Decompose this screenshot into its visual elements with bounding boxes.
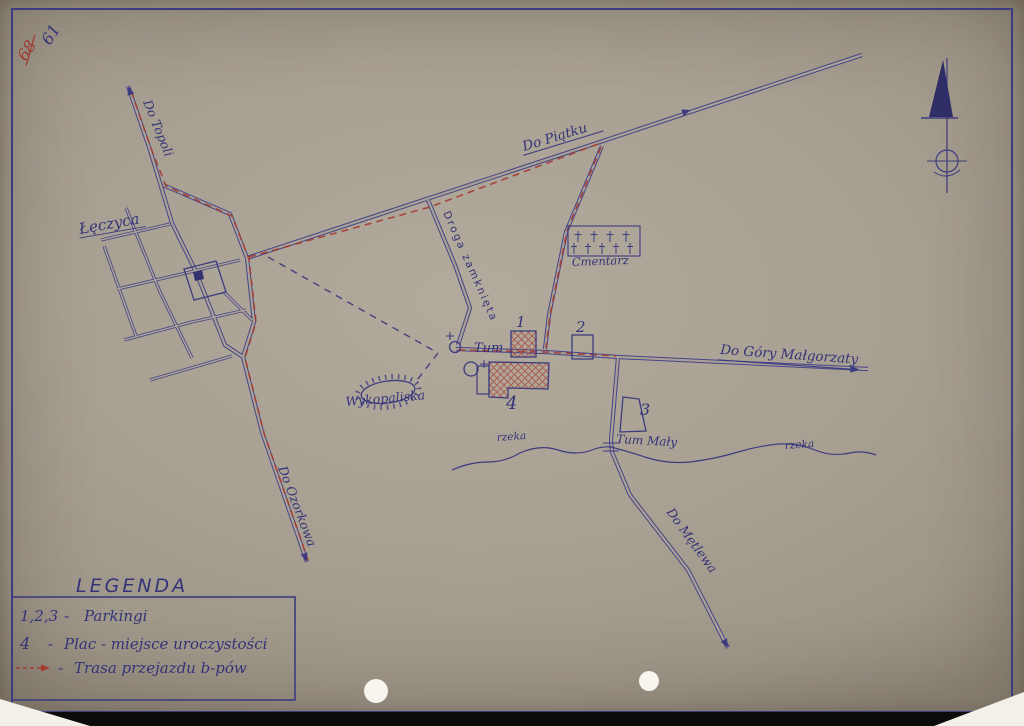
legend-entry-2-dash: - [48,635,53,653]
scan-bottom-strip [0,712,1024,726]
tum-area: 1 2 3 4 Tum Tum Mały [446,313,678,449]
road-label-metlewa: Do Mętlewa [663,504,721,575]
road-label-gm-group: Do Góry Małgorzaty [717,342,861,373]
cross-icon-2 [480,360,488,368]
legend-route-arrow-icon [41,665,50,672]
legend-entry-1-dash: - [64,607,69,625]
dashed-lines [268,257,438,384]
hand-drawn-map: 68 61 [0,0,1024,726]
marker-1: 1 [516,313,526,331]
legend: LEGENDA 1,2,3 - Parkingi 4 - Plac - miej… [12,575,295,700]
marker-2: 2 [575,318,586,336]
tum-maly-label: Tum Mały [616,432,678,449]
legend-entry-3-label: Trasa przejazdu b-pów [74,659,247,677]
dashed-line-to-excavation [414,353,438,384]
cemetery: Cmentarz [568,226,640,269]
cemetery-label: Cmentarz [572,253,630,269]
town-hall-block [193,270,204,281]
road-label-piatku-group: Do Piątku [519,116,604,156]
ceremony-square-annex [477,366,489,394]
north-arrow [921,58,967,193]
punch-hole-left [364,679,388,703]
legend-entry-1-label: Parkingi [83,607,148,625]
parking-1-square [511,331,536,357]
cemetery-crosses-icon [571,231,633,254]
river-label-west: rzeka [496,430,526,444]
cemetery-outline [568,226,640,256]
crossed-number-text: 68 [13,37,40,64]
river-label-east: rzeka [784,438,814,452]
road-label-topoli: Do Topoli [140,97,177,159]
north-arrowhead [929,60,953,117]
legend-entry-1-symbol: 1,2,3 [20,607,58,625]
legend-entry-3-dash: - [58,659,63,677]
legend-entry-2-label: Plac - miejsce uroczystości [63,635,268,653]
punch-hole-right [639,671,659,691]
marker-3: 3 [640,400,650,419]
archival-number: 61 [37,21,64,48]
tum-label: Tum [474,341,503,356]
dashed-line-leczyca-tum [268,257,438,353]
marker-4: 4 [505,393,517,414]
cross-icon [446,332,454,340]
legend-title: LEGENDA [76,575,188,597]
road-town-bypass [163,185,254,357]
chapel-circle-icon [464,362,478,376]
wykopaliska-label: Wykopaliska [345,387,426,409]
scanned-map-document: 68 61 [0,0,1024,726]
archival-number-text: 61 [37,21,64,48]
road-metlew [611,357,728,648]
legend-entry-2-symbol: 4 [19,634,30,653]
scan-corner-right [934,692,1024,726]
ceremony-square-4 [489,362,549,398]
